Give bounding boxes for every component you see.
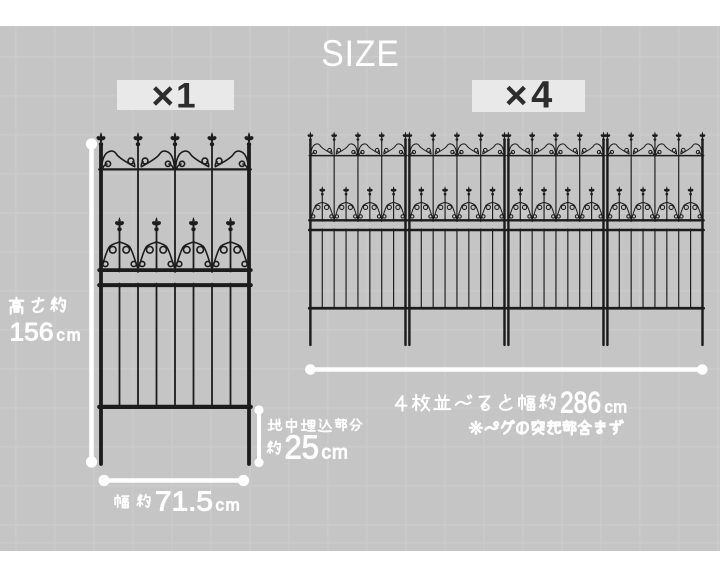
svg-text:cm: cm <box>216 496 242 515</box>
svg-text:cm: cm <box>605 399 628 417</box>
svg-text:SIZE: SIZE <box>321 32 400 74</box>
svg-text:71.5: 71.5 <box>155 486 213 517</box>
svg-text:286: 286 <box>560 387 601 420</box>
svg-text:156: 156 <box>10 319 54 347</box>
svg-text:×1: ×1 <box>151 75 195 118</box>
svg-text:cm: cm <box>57 327 83 345</box>
svg-text:cm: cm <box>322 443 349 464</box>
svg-text:25: 25 <box>285 429 320 466</box>
